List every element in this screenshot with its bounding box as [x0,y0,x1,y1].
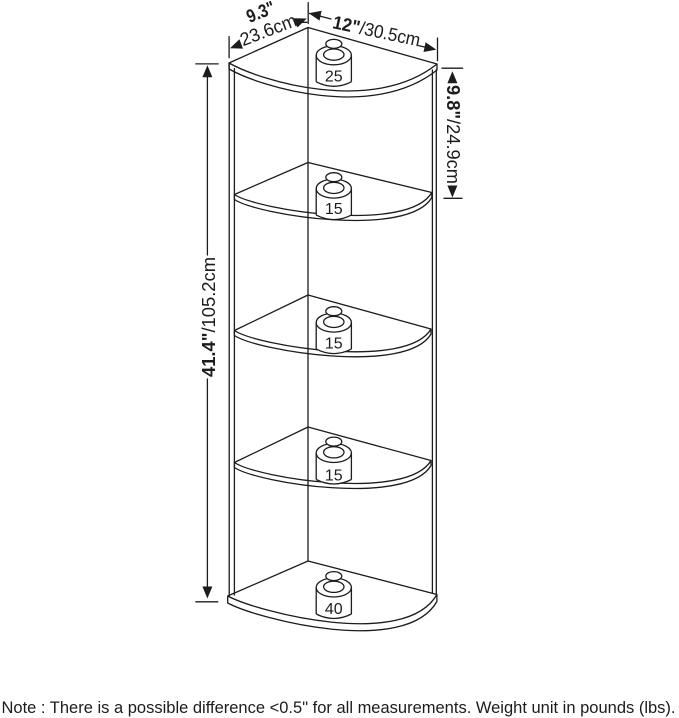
svg-text:15: 15 [325,201,343,218]
svg-text:12"/30.5cm: 12"/30.5cm [331,11,422,50]
svg-text:9.8"/24.9cm: 9.8"/24.9cm [443,85,464,184]
svg-text:40: 40 [325,601,343,618]
svg-text:15: 15 [325,336,343,353]
svg-text:25: 25 [325,68,343,85]
svg-text:41.4"/105.2cm: 41.4"/105.2cm [198,257,219,377]
svg-text:15: 15 [325,467,343,484]
svg-text:Note : There is a possible dif: Note : There is a possible difference <0… [2,698,676,717]
